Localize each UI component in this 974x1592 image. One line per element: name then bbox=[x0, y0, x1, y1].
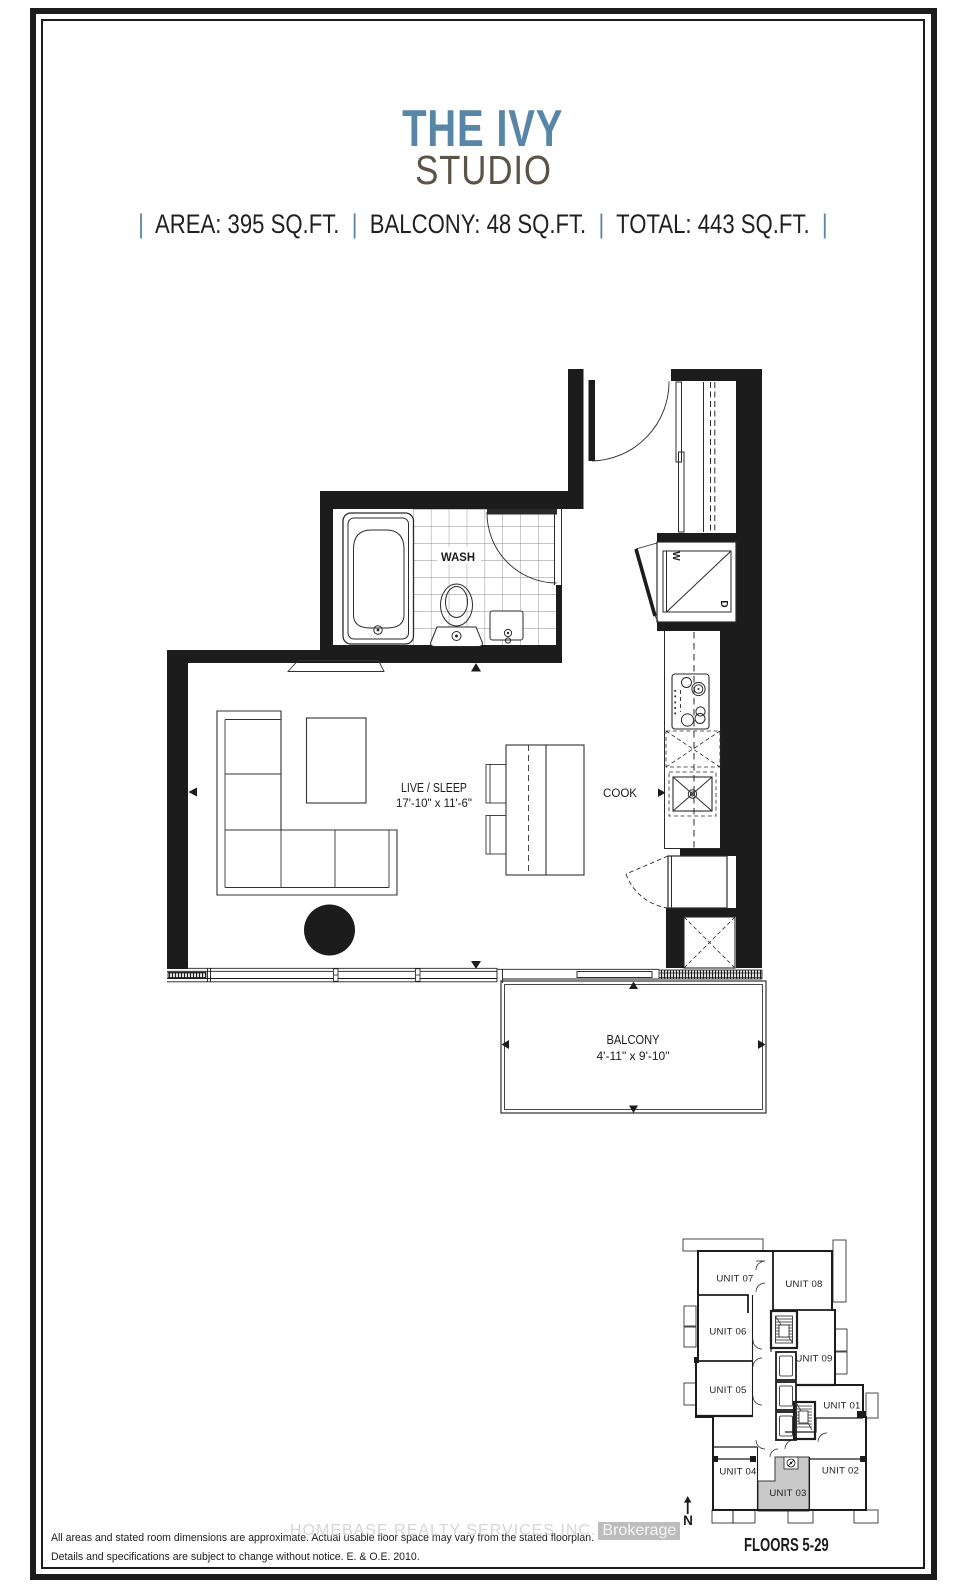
svg-text:UNIT 03: UNIT 03 bbox=[769, 1488, 806, 1499]
svg-text:UNIT 08: UNIT 08 bbox=[785, 1279, 822, 1290]
svg-text:UNIT 02: UNIT 02 bbox=[822, 1466, 859, 1477]
svg-text:UNIT 09: UNIT 09 bbox=[795, 1354, 832, 1365]
svg-text:17'-10" x 11'-6": 17'-10" x 11'-6" bbox=[396, 796, 472, 810]
svg-text:UNIT 06: UNIT 06 bbox=[709, 1327, 746, 1338]
svg-text:4'-11" x 9'-10": 4'-11" x 9'-10" bbox=[597, 1049, 670, 1063]
svg-text:UNIT 07: UNIT 07 bbox=[716, 1274, 753, 1285]
svg-text:COOK: COOK bbox=[603, 788, 637, 800]
svg-text:UNIT 04: UNIT 04 bbox=[719, 1467, 757, 1478]
svg-text:BALCONY: BALCONY bbox=[607, 1033, 661, 1047]
svg-text:WASH: WASH bbox=[441, 552, 475, 564]
svg-text:LIVE / SLEEP: LIVE / SLEEP bbox=[401, 781, 467, 795]
svg-text:W: W bbox=[670, 551, 681, 561]
svg-text:UNIT 05: UNIT 05 bbox=[709, 1385, 746, 1396]
svg-text:D: D bbox=[718, 600, 729, 607]
svg-text:UNIT 01: UNIT 01 bbox=[823, 1401, 860, 1412]
